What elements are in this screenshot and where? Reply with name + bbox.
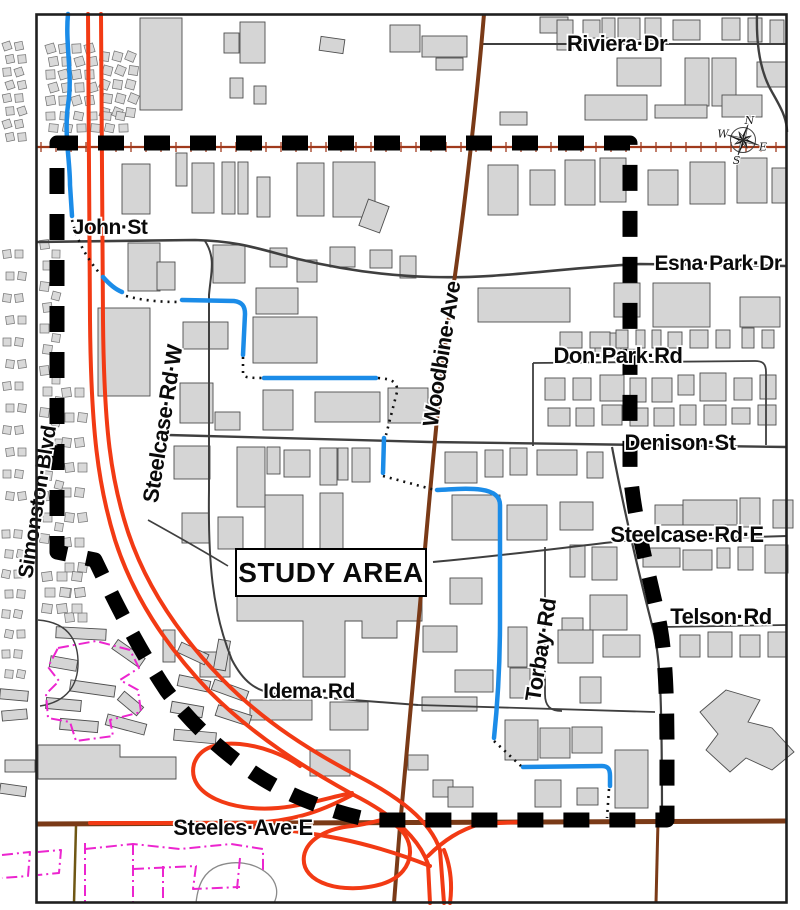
pond-outline <box>196 863 277 903</box>
street-label-steelcase-rd-e: Steelcase·Rd·E <box>610 522 763 547</box>
compass-letter-s: S <box>733 154 741 167</box>
street-label-woodbine-ave: Woodbine·Ave <box>418 279 466 428</box>
compass-letter-n: N <box>744 114 755 127</box>
street-label-esna-park-dr: Esna·Park·Dr <box>654 252 781 275</box>
study-area-map: Riviera·DrJohn·StEsna·Park·DrDon·Park·Rd… <box>0 0 800 910</box>
street-label-don-park-rd: Don·Park·Rd <box>554 343 683 368</box>
street-label-denison-st: Denison·St <box>624 430 736 455</box>
compass-letter-e: E <box>758 140 767 153</box>
street-label-riviera-dr: Riviera·Dr <box>567 31 668 56</box>
study-area-box: STUDY AREA <box>235 548 427 597</box>
study-area-label: STUDY AREA <box>238 557 423 589</box>
street-label-telson-rd: Telson·Rd <box>670 604 771 629</box>
map-svg: Riviera·DrJohn·StEsna·Park·DrDon·Park·Rd… <box>0 0 800 910</box>
street-label-john-st: John·St <box>73 216 148 239</box>
street-label-idema-rd: Idema·Rd <box>263 680 355 703</box>
compass-letter-w: W <box>717 128 730 141</box>
olive-road <box>74 826 76 903</box>
street-label-steeles-ave-e: Steeles·Ave·E <box>173 815 312 840</box>
